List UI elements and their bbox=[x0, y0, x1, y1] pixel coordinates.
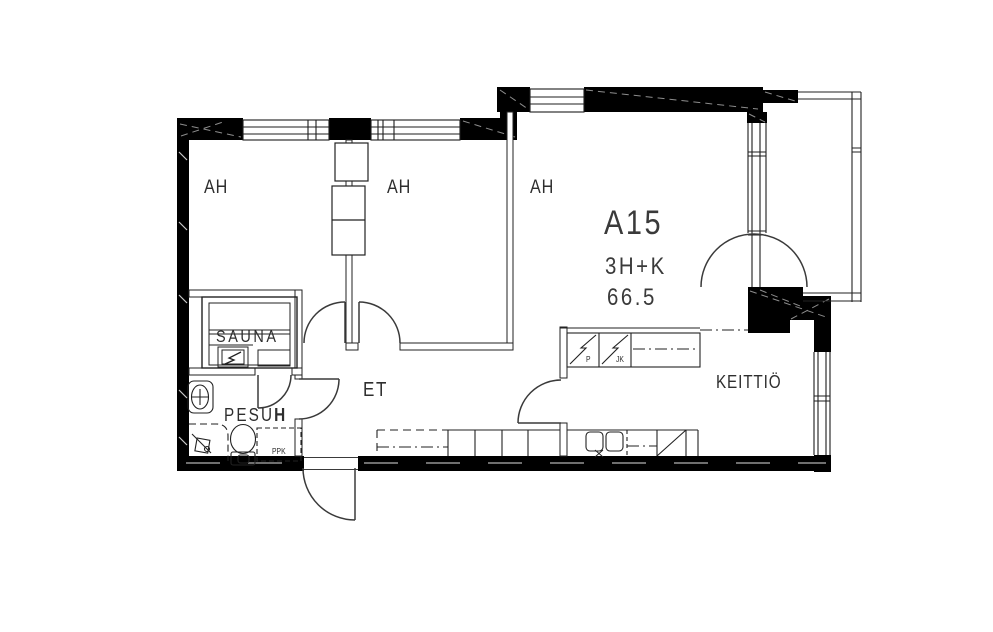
apartment-layout: 3H+K bbox=[605, 255, 667, 279]
washbasin-icon bbox=[188, 381, 213, 413]
door-kitchen bbox=[518, 380, 561, 423]
room-label-washroom: PESUH bbox=[224, 406, 287, 424]
room-label-bedroom-1: AH bbox=[204, 178, 228, 197]
window-kitchen-right bbox=[814, 352, 830, 455]
door-sauna bbox=[258, 375, 291, 408]
door-bedroom-1 bbox=[304, 302, 345, 343]
apartment-area: 66.5 bbox=[607, 286, 657, 310]
appliance-label-fridge: JK bbox=[616, 356, 624, 364]
appliance-label-washing-machine: PPK bbox=[272, 448, 286, 456]
room-label-sauna: SAUNA bbox=[216, 328, 279, 345]
door-balcony bbox=[701, 234, 807, 287]
kitchen-counter bbox=[567, 430, 698, 457]
wardrobes-bedroom-divider bbox=[332, 143, 368, 255]
room-label-washroom-text: PESU bbox=[224, 405, 274, 425]
sauna-bench-step bbox=[258, 350, 290, 366]
room-label-kitchen: KEITTIÖ bbox=[716, 373, 781, 391]
door-washroom bbox=[299, 379, 339, 419]
floorplan-drawing bbox=[0, 0, 993, 632]
door-entrance bbox=[303, 456, 358, 520]
windows bbox=[243, 89, 830, 455]
window-living-right bbox=[748, 123, 766, 287]
door-bedroom-2 bbox=[359, 302, 400, 343]
window-living-top bbox=[530, 89, 584, 112]
apartment-id: A15 bbox=[604, 206, 663, 240]
room-label-hallway: ET bbox=[363, 380, 388, 400]
balcony-glazing bbox=[798, 92, 861, 302]
hallway-closets bbox=[377, 430, 560, 456]
sauna-heater-icon bbox=[218, 347, 248, 367]
appliance-label-freezer: P bbox=[586, 356, 591, 364]
window-bedroom-1 bbox=[243, 120, 329, 140]
room-label-washroom-bold: H bbox=[274, 405, 287, 425]
window-bedroom-2 bbox=[371, 120, 460, 140]
sink-unit-diagonal bbox=[657, 430, 686, 456]
floorplan: AH AH AH A15 3H+K 66.5 SAUNA PESUH ET KE… bbox=[0, 0, 993, 632]
cooktop-icon bbox=[586, 432, 623, 457]
room-label-bedroom-2: AH bbox=[387, 178, 411, 197]
shower-area bbox=[189, 424, 228, 461]
room-label-living-room: AH bbox=[530, 178, 554, 197]
